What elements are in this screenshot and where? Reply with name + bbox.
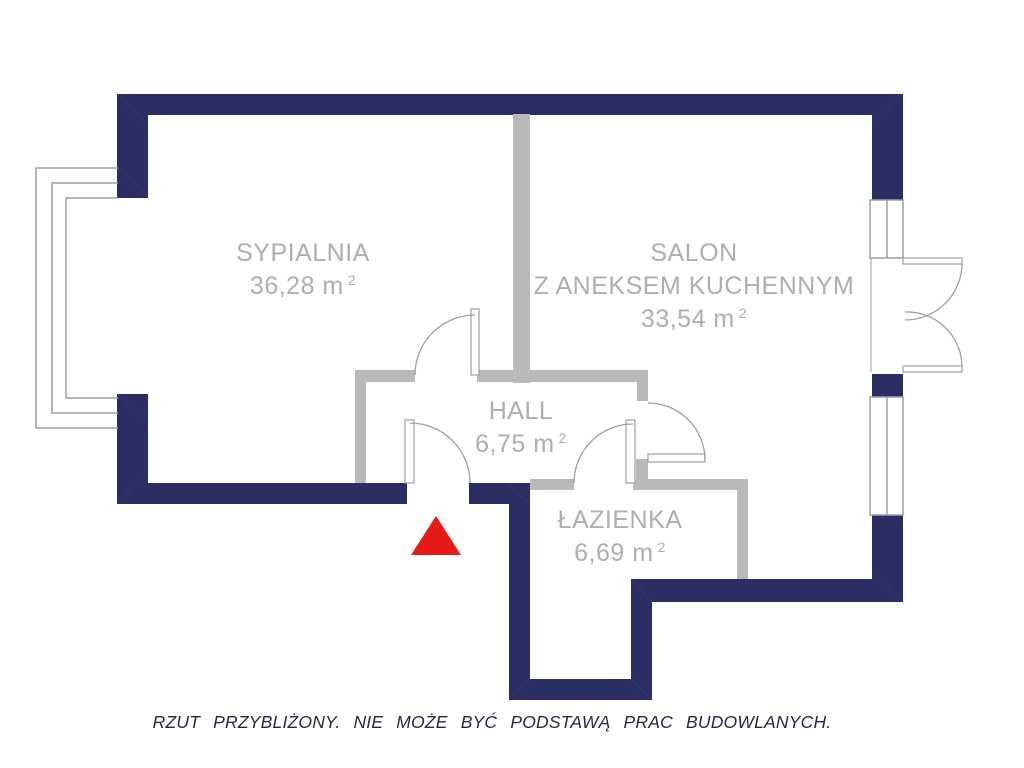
bedroom-door [415,309,479,375]
balcony-door [871,258,962,372]
entrance-marker-icon [411,516,461,555]
area-exponent: 2 [739,305,747,321]
wall-bedroom-salon-divider [513,114,530,383]
interior-walls [355,114,748,579]
wall-right-lower [872,513,903,602]
room-area: 6,75 m2 [475,428,567,464]
wall-bathroom-right [737,479,748,579]
floor-plan: SYPIALNIA 36,28 m2 SALON Z ANEKSEM KUCHE… [0,0,1024,768]
entrance-door [405,420,470,483]
wall-bathroom-top-right [633,479,748,490]
wall-protrusion-left [509,483,530,700]
room-label-hall: HALL 6,75 m2 [475,395,567,464]
wall-right-pier [872,374,903,398]
wall-bottom-salon [631,579,903,602]
room-name: ŁAZIENKA [558,504,683,537]
wall-hall-left [355,370,366,483]
room-area: 33,54 m2 [534,303,855,339]
area-exponent: 2 [658,539,666,555]
wall-bottom-bedroom [117,483,407,504]
area-exponent: 2 [348,272,356,288]
wall-bathroom-top-left [530,479,574,490]
area-exponent: 2 [559,430,567,446]
wall-top [117,94,903,115]
bay-window [36,168,118,428]
disclaimer-text: RZUT PRZYBLIŻONY. NIE MOŻE BYĆ PODSTAWĄ … [153,712,832,733]
room-label-lazienka: ŁAZIENKA 6,69 m2 [558,504,683,573]
room-name-line2: Z ANEKSEM KUCHENNYM [534,270,855,303]
room-name: SYPIALNIA [236,237,370,270]
window-lower-right [870,397,903,515]
wall-salon-door-stub-top [637,382,648,401]
room-area: 6,69 m2 [558,537,683,573]
room-label-salon: SALON Z ANEKSEM KUCHENNYM 33,54 m2 [534,237,855,339]
bathroom-door [574,420,635,483]
room-label-sypialnia: SYPIALNIA 36,28 m2 [236,237,370,306]
room-name: HALL [475,395,567,428]
wall-salon-door-stub-bottom [636,459,648,481]
wall-hall-top-right [477,370,648,382]
room-name: SALON [534,237,855,270]
floor-plan-drawing [0,0,1024,768]
living-room-door [648,403,705,462]
wall-protrusion-bottom [509,679,652,700]
room-area: 36,28 m2 [236,270,370,306]
window-upper-right [870,200,903,258]
